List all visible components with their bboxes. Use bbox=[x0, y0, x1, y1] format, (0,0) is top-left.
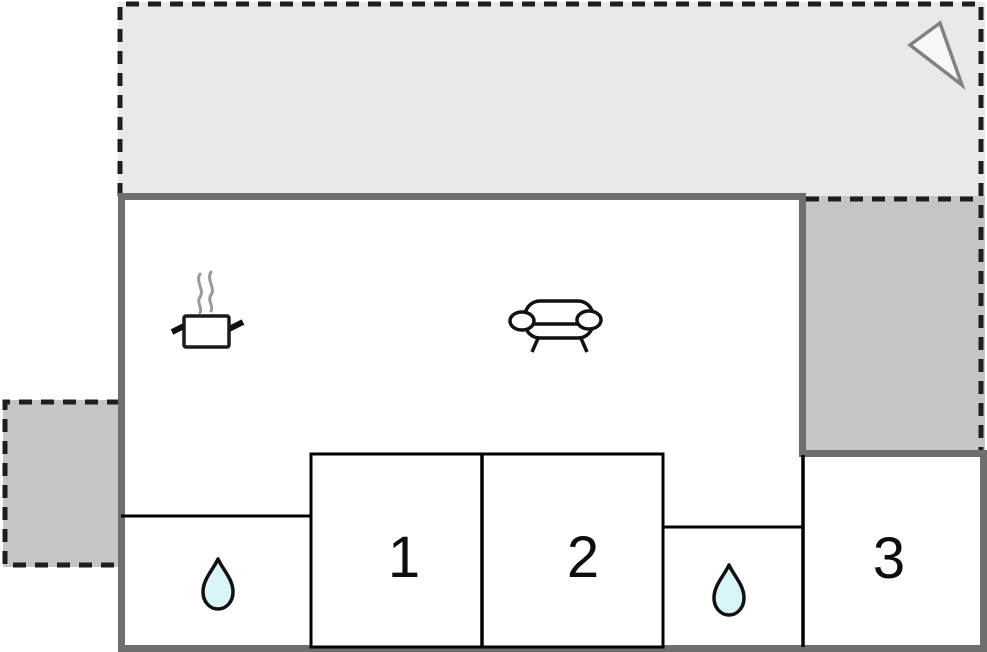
sofa-armrest-right bbox=[577, 311, 601, 329]
terrace-left-area bbox=[3, 400, 120, 567]
wall-right-upper bbox=[799, 193, 806, 457]
wall-left bbox=[118, 193, 125, 652]
wall-right-lower bbox=[980, 450, 987, 652]
room-3-label: 3 bbox=[873, 526, 905, 591]
wall-terrace-right-bottom bbox=[799, 450, 987, 457]
rooms-1-2-block bbox=[311, 454, 663, 647]
floor-plan: 1 2 3 bbox=[0, 0, 987, 652]
sofa-armrest-left bbox=[510, 312, 534, 330]
pot-body bbox=[184, 316, 229, 347]
floor-plan-canvas: 1 2 3 bbox=[0, 0, 987, 652]
room-2-label: 2 bbox=[567, 525, 599, 590]
terrace-right-area bbox=[803, 196, 985, 454]
room-1-label: 1 bbox=[388, 525, 420, 590]
wall-top bbox=[118, 193, 806, 200]
terrace-top-area bbox=[118, 2, 985, 196]
